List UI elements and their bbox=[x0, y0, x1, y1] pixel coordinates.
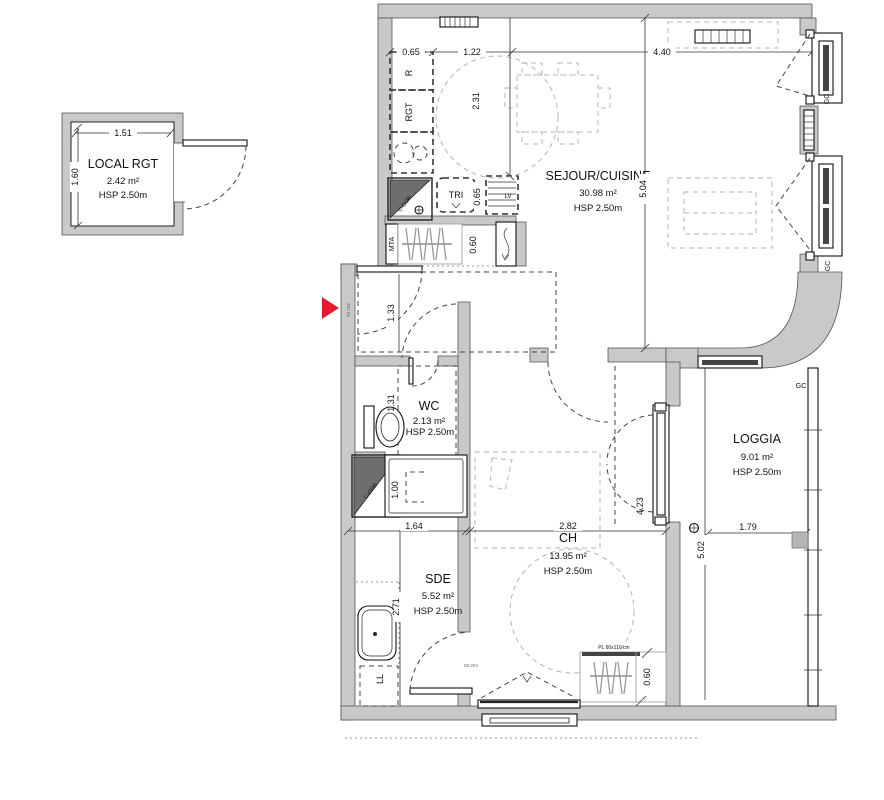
room-hsp-sejour: HSP 2.50m bbox=[574, 203, 622, 214]
dim-counter-depth: 0.65 bbox=[472, 188, 482, 206]
ch-door-swing bbox=[548, 362, 608, 422]
window-1 bbox=[776, 30, 842, 104]
dim-loggia-width: 1.79 bbox=[739, 522, 757, 532]
entrance-door-leaf bbox=[357, 266, 422, 272]
wall-ch-top-left bbox=[530, 348, 548, 362]
local-rgt-door-swing bbox=[183, 146, 246, 209]
ch-bottom-window bbox=[478, 672, 580, 726]
gc-label-win2: GC bbox=[825, 261, 832, 272]
dim-local-width: 1.51 bbox=[114, 128, 132, 138]
wc-door-leaf bbox=[409, 358, 413, 384]
toilet-tank bbox=[364, 406, 374, 448]
top-vent-grille bbox=[440, 17, 478, 27]
wall-bottom bbox=[341, 706, 836, 720]
dim-sde-height: 2.71 bbox=[391, 598, 401, 616]
dim-sejour-height: 5.04 bbox=[638, 180, 648, 198]
room-label-ch: CH bbox=[559, 531, 577, 545]
closet-rgt-label: RGT bbox=[404, 102, 414, 122]
floor-plan-page: 1.51 1.60 LOCAL RGT 2.42 m² HSP 2.50m bbox=[0, 0, 884, 800]
dim-ch-closet: 0.60 bbox=[642, 668, 652, 686]
facade-windows: GC GC bbox=[776, 30, 842, 271]
wall-ch-top-right bbox=[608, 348, 666, 362]
room-area-sejour: 30.98 m² bbox=[579, 188, 617, 199]
room-hsp-loggia: HSP 2.50m bbox=[733, 467, 781, 478]
dim-wc-width: 1.31 bbox=[386, 394, 396, 412]
gc-label-loggia: GC bbox=[796, 383, 807, 390]
room-area-ch: 13.95 m² bbox=[549, 551, 587, 562]
wc-door-swing bbox=[412, 360, 438, 386]
room-label-sejour: SEJOUR/CUISINE bbox=[546, 169, 651, 183]
turning-circle-sejour bbox=[436, 56, 558, 178]
hall-sejour-door-swing bbox=[402, 304, 456, 358]
entrance-arrow bbox=[322, 297, 339, 319]
ll-label: LL bbox=[375, 674, 385, 684]
dim-ch-width: 2.82 bbox=[559, 521, 577, 531]
dim-ch-height: 4.23 bbox=[635, 497, 645, 515]
dim-closet-depth: 2.31 bbox=[471, 92, 481, 110]
room-hsp-wc: HSP 2.50m bbox=[406, 427, 454, 438]
loggia: GC LOGGIA 9.01 m² HSP 2.50m 1.79 5.02 bbox=[689, 356, 822, 706]
tri-arrow bbox=[452, 203, 460, 208]
bed bbox=[475, 452, 600, 548]
closet-r-label: R bbox=[404, 69, 414, 76]
door-size-tag-entry: 93 204 bbox=[346, 303, 351, 317]
room-area-loggia: 9.01 m² bbox=[741, 452, 773, 463]
closet-tech-box bbox=[390, 132, 433, 173]
sde-door-swing bbox=[410, 632, 468, 690]
window-1-swing bbox=[776, 34, 810, 96]
room-label-sde: SDE bbox=[425, 572, 451, 586]
room-hsp-ch: HSP 2.50m bbox=[544, 566, 592, 577]
dim-loggia-height: 5.02 bbox=[696, 541, 706, 559]
tech-symbol-circle1 bbox=[394, 143, 414, 163]
room-hsp-sde: HSP 2.50m bbox=[414, 606, 462, 617]
tech-symbol-circle2 bbox=[413, 146, 427, 160]
mta-label: MTA bbox=[389, 237, 396, 252]
local-rgt-door-leaf bbox=[183, 140, 247, 146]
dim-hall: 1.33 bbox=[386, 304, 396, 322]
room-hsp-local-rgt: HSP 2.50m bbox=[99, 190, 147, 201]
dim-sde-width: 1.64 bbox=[405, 521, 423, 531]
room-label-wc: WC bbox=[419, 399, 440, 413]
loggia-block bbox=[792, 532, 808, 548]
ch-closet-tag: PL 60x110 cm bbox=[598, 645, 629, 651]
door-size-tag-sde: 83 204 bbox=[464, 663, 478, 668]
wall-top bbox=[378, 4, 812, 18]
top-dimensions: 0.65 1.22 4.40 2.31 5.04 bbox=[386, 14, 816, 352]
dining-table bbox=[505, 63, 610, 144]
window-2-swing bbox=[776, 158, 810, 250]
wall-curved-corner bbox=[698, 272, 842, 368]
counter-hatch bbox=[488, 182, 516, 206]
dim-shower: 1.00 bbox=[390, 481, 400, 499]
local-rgt-door-opening bbox=[174, 143, 185, 202]
dim-local-height: 1.60 bbox=[70, 168, 80, 186]
wall-kitchen-right bbox=[516, 222, 526, 266]
floor-plan-drawing: 1.51 1.60 LOCAL RGT 2.42 m² HSP 2.50m bbox=[0, 0, 884, 800]
wall-left-lower bbox=[341, 264, 355, 720]
dim-top-b: 1.22 bbox=[463, 47, 481, 57]
gc-label-win1: GC bbox=[824, 94, 831, 105]
wall-ch-right-lower bbox=[666, 522, 680, 706]
room-label-local-rgt: LOCAL RGT bbox=[88, 157, 159, 171]
room-area-sde: 5.52 m² bbox=[422, 591, 454, 602]
sde-door-leaf bbox=[410, 688, 472, 694]
sde-sink-drain bbox=[373, 632, 377, 636]
room-area-local-rgt: 2.42 m² bbox=[107, 176, 139, 187]
sofa-table bbox=[668, 178, 772, 248]
loggia-top-window bbox=[698, 356, 762, 368]
shutter-box bbox=[800, 106, 818, 154]
tri-label: TRI bbox=[449, 190, 464, 200]
entry-hall: 1.33 93 204 bbox=[322, 266, 556, 386]
washer-slot bbox=[360, 666, 398, 706]
wall-ch-right-upper bbox=[666, 362, 680, 406]
dim-top-a: 0.65 bbox=[402, 47, 420, 57]
room-label-loggia: LOGGIA bbox=[733, 432, 782, 446]
ch-closet: 0.60 PL 60x110 cm bbox=[580, 645, 666, 706]
dim-top-c: 4.40 bbox=[653, 47, 671, 57]
room-area-wc: 2.13 m² bbox=[413, 416, 445, 427]
apartment-walls bbox=[341, 4, 842, 738]
window-2 bbox=[776, 153, 842, 260]
room-local-rgt: 1.51 1.60 LOCAL RGT 2.42 m² HSP 2.50m bbox=[62, 113, 247, 235]
lv-label: LV bbox=[505, 194, 512, 200]
dim-kitchen-closet: 0.60 bbox=[468, 236, 478, 254]
